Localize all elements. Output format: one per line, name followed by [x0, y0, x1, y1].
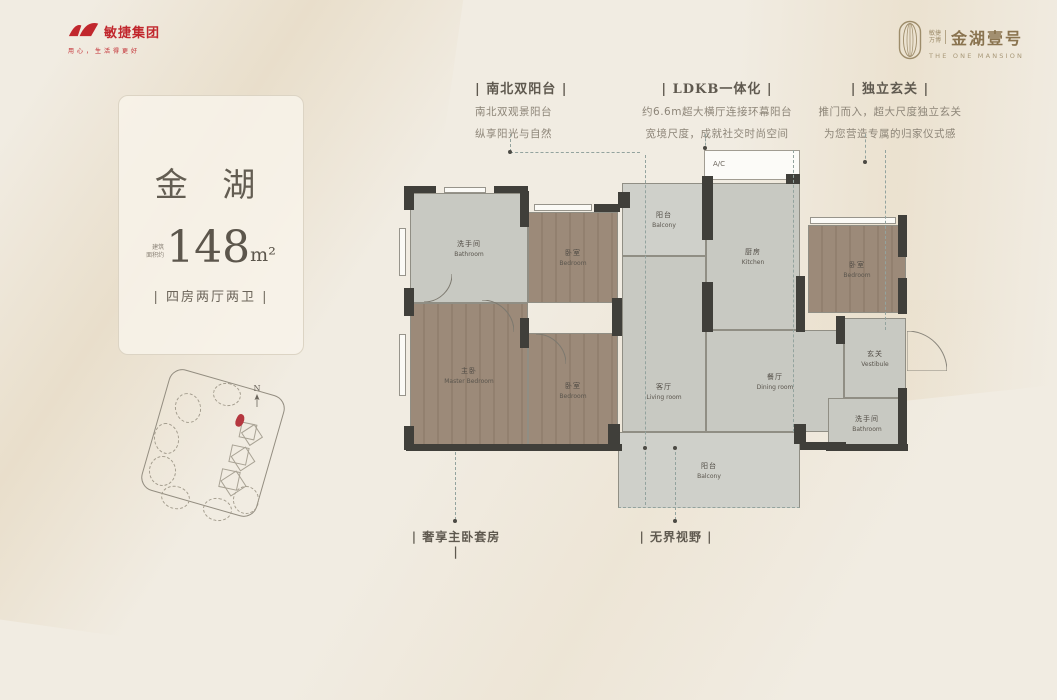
ac-label: A/C [713, 160, 725, 168]
room-label-en: Dining room [757, 384, 794, 391]
window [534, 204, 592, 211]
north-compass-icon: N [253, 384, 261, 412]
callout-boundless-view: | 无界视野 | [628, 528, 724, 545]
callout-line: 约6.6m超大横厅连接环幕阳台 [622, 104, 812, 119]
project-tags: 敏捷 万博 [929, 30, 946, 44]
connector-dot [673, 519, 677, 523]
room-label-en: Balcony [652, 222, 676, 229]
connector-dot [643, 446, 647, 450]
callout-title: | LDKB一体化 | [622, 78, 812, 97]
room-bedroom-middle: 卧室Bedroom [528, 333, 618, 448]
room-label-en: Living room [646, 394, 681, 401]
room-label-en: Bedroom [559, 260, 586, 267]
room-label-cn: 主卧 [461, 366, 477, 376]
room-vestibule: 玄关Vestibule [844, 318, 906, 398]
connector-dot [863, 160, 867, 164]
entry-door-arc [907, 331, 947, 375]
room-bedroom-top-left: 卧室Bedroom [528, 212, 618, 303]
room-bathroom-right: 洗手间Bathroom [828, 398, 906, 448]
callout-connector [455, 452, 456, 520]
room-label-cn: 阳台 [656, 210, 672, 220]
room-bathroom-top: 洗手间Bathroom [410, 193, 528, 303]
room-label-cn: 厨房 [745, 247, 761, 257]
unit-name: 金 湖 [119, 158, 303, 206]
room-label-cn: 玄关 [867, 349, 883, 359]
room-label-cn: 餐厅 [767, 372, 783, 382]
project-logo: 敏捷 万博 金湖壹号 THE ONE MANSION [898, 20, 1024, 64]
unit-area: 建筑 面积约 148 m² [119, 228, 303, 268]
north-label: N [253, 384, 261, 393]
room-label-en: Bathroom [852, 426, 881, 433]
connector-dot [508, 150, 512, 154]
callout-title: | 无界视野 | [628, 528, 724, 545]
room-kitchen: 厨房Kitchen [706, 183, 800, 330]
site-plan: N [145, 368, 295, 528]
unit-area-unit: m² [250, 244, 276, 266]
unit-layout: | 四房两厅两卫 | [119, 286, 303, 305]
room-label-en: Bedroom [559, 393, 586, 400]
room-label-cn: 阳台 [701, 461, 717, 471]
project-name-en: THE ONE MANSION [929, 52, 1024, 60]
room-label-cn: 客厅 [656, 382, 672, 392]
room-label-cn: 洗手间 [457, 239, 481, 249]
area-prefix-1: 建筑 [152, 244, 164, 252]
project-name: 金湖壹号 [951, 25, 1023, 49]
callout-title: | 奢享主卧套房 | [408, 528, 504, 559]
project-tag-1: 敏捷 [929, 30, 941, 37]
window [444, 187, 486, 193]
guide-dashed-line [885, 150, 886, 330]
room-label-en: Bathroom [454, 251, 483, 258]
unit-info-card: 金 湖 建筑 面积约 148 m² | 四房两厅两卫 | [118, 95, 304, 355]
room-living: 客厅Living room [622, 256, 706, 432]
callout-line: 为您营造专属的归家仪式感 [800, 126, 980, 141]
callout-vestibule: | 独立玄关 | 推门而入，超大尺度独立玄关 为您营造专属的归家仪式感 [800, 78, 980, 141]
room-label-cn: 洗手间 [855, 414, 879, 424]
room-bedroom-top-right: 卧室Bedroom [808, 225, 906, 313]
room-label-cn: 卧室 [565, 381, 581, 391]
room-label-en: Bedroom [843, 272, 870, 279]
developer-logo: 敏捷集团 用心，生活得更好 [68, 20, 188, 55]
developer-name: 敏捷集团 [104, 22, 160, 41]
room-dining: 餐厅Dining room [706, 330, 844, 432]
unit-area-value: 148 [166, 228, 250, 268]
room-label-cn: 卧室 [849, 260, 865, 270]
window [810, 217, 896, 224]
callout-title: | 独立玄关 | [800, 78, 980, 97]
project-emblem-icon [898, 20, 922, 64]
room-label-cn: 卧室 [565, 248, 581, 258]
guide-dashed-line [645, 155, 646, 505]
window [399, 228, 406, 276]
room-label-en: Kitchen [742, 259, 765, 266]
wall [404, 186, 436, 193]
callout-master-suite: | 奢享主卧套房 | [408, 528, 504, 559]
callout-line: 推门而入，超大尺度独立玄关 [800, 104, 980, 119]
room-master-bedroom: 主卧Master Bedroom [410, 303, 528, 448]
room-label-en: Balcony [697, 473, 721, 480]
connector-dot [703, 146, 707, 150]
wall [594, 204, 620, 212]
callout-connector [675, 452, 676, 520]
room-balcony-top: 阳台Balcony [622, 183, 706, 256]
window [399, 334, 406, 396]
room-label-en: Master Bedroom [444, 378, 494, 385]
callout-ldkb: | LDKB一体化 | 约6.6m超大横厅连接环幕阳台 宽境尺度，成就社交时尚空… [622, 78, 812, 141]
unit-area-prefix: 建筑 面积约 [146, 244, 164, 260]
callout-line: 宽境尺度，成就社交时尚空间 [622, 126, 812, 141]
connector-dot [453, 519, 457, 523]
project-tag-2: 万博 [929, 37, 941, 44]
site-building-outline [149, 456, 176, 486]
area-prefix-2: 面积约 [146, 252, 164, 260]
developer-slogan: 用心，生活得更好 [68, 46, 188, 55]
guide-dashed-line [510, 152, 640, 153]
guide-dashed-line [793, 150, 794, 432]
developer-logo-icon [68, 20, 100, 42]
connector-dot [673, 446, 677, 450]
wall [612, 298, 622, 336]
room-label-en: Vestibule [861, 361, 888, 368]
